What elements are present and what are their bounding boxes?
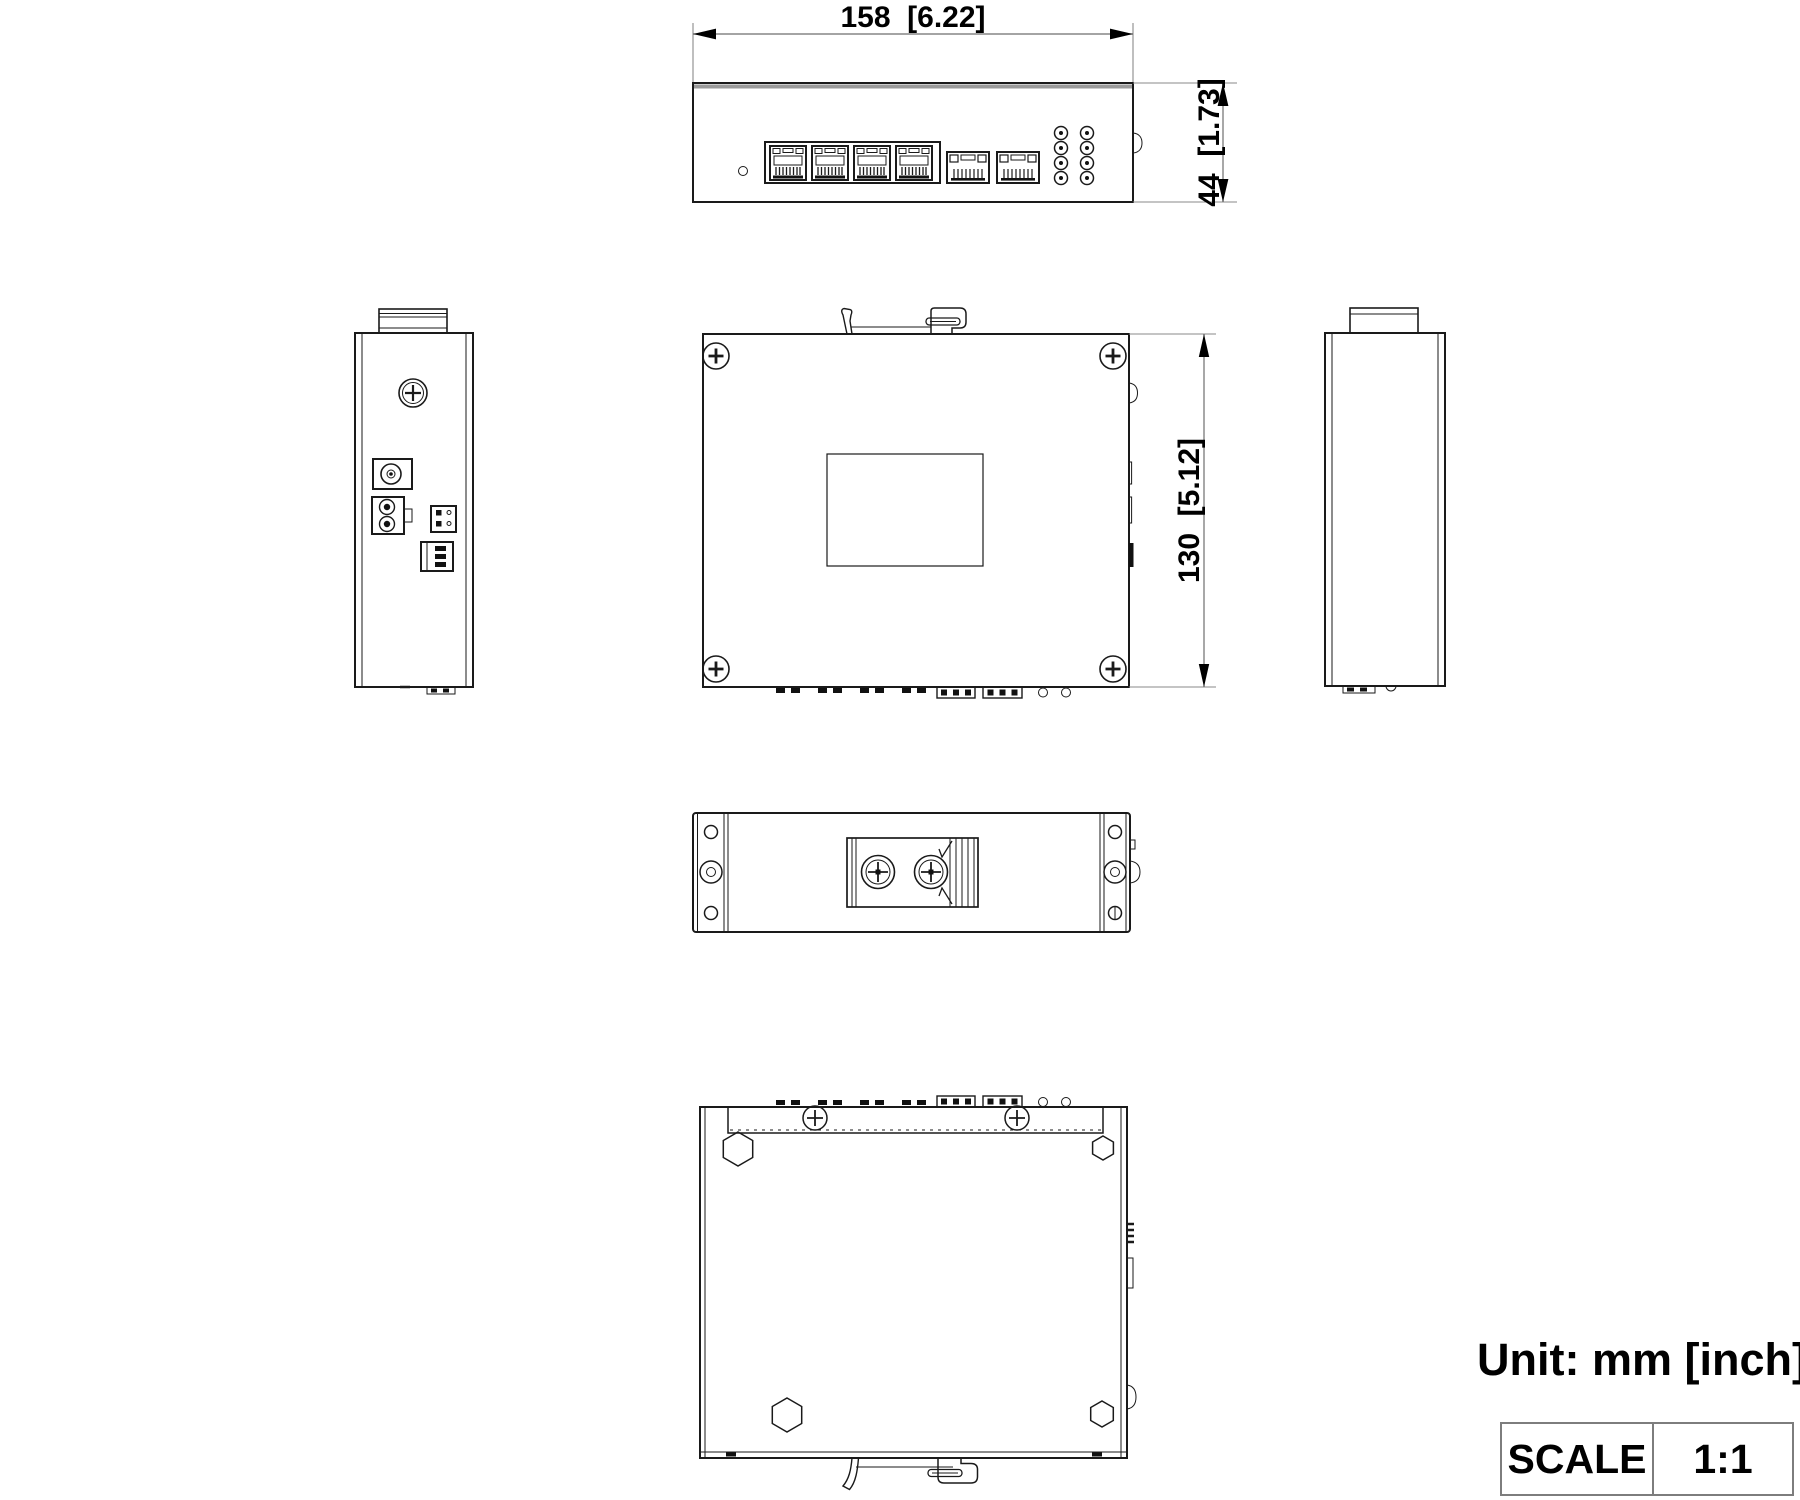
band-screw-2 (1005, 1106, 1029, 1130)
bottom-view (700, 1096, 1136, 1490)
rear-panel-band (728, 1106, 1103, 1133)
bottom-connector-side (1343, 686, 1396, 693)
relay-connector (431, 506, 456, 532)
dim-arrow-down (1199, 664, 1209, 687)
rj45-port-1 (770, 146, 806, 180)
din-clip-top (842, 308, 966, 334)
din-rail-bracket (847, 838, 978, 907)
front-top-edge-band (694, 85, 1132, 89)
front-view: 158 [6.22] 44 [1.73] (693, 1, 1237, 207)
scale-value: 1:1 (1654, 1424, 1792, 1494)
edge-features (1127, 1224, 1136, 1409)
hex-standoff-top-left (723, 1132, 752, 1166)
front-edge-ports (776, 1096, 1071, 1107)
hex-standoff-bottom-right (1091, 1401, 1114, 1427)
din-rail-clip-side (379, 309, 447, 333)
dim-arrow-up (1199, 334, 1209, 357)
edge-bump (1129, 383, 1138, 403)
band-screw-1 (803, 1106, 827, 1130)
bracket-screw-1 (862, 856, 895, 889)
dimension-depth-label: 130 [5.12] (1173, 438, 1206, 583)
bracket-screw-2 (915, 856, 948, 889)
dimension-width-label: 158 [6.22] (840, 1, 985, 34)
edge-connector-mark (1129, 543, 1134, 567)
hex-standoff-top-right (1093, 1136, 1114, 1160)
dimension-depth: 130 [5.12] (1129, 334, 1216, 687)
din-rail-clip-side (1350, 308, 1418, 333)
rj45-port-group (765, 142, 940, 183)
left-side-view (355, 309, 473, 694)
sfp-port-2 (997, 152, 1039, 183)
dim-arrow-left (693, 29, 716, 40)
scale-table: SCALE 1:1 (1500, 1422, 1794, 1496)
edge-bump (1130, 861, 1140, 883)
rear-view (693, 813, 1140, 932)
front-edge-ports (776, 687, 1071, 698)
dip-switch-block (421, 542, 453, 571)
din-clip-bottom (843, 1458, 978, 1490)
rj45-port-3 (854, 146, 890, 180)
drawing-linework: 158 [6.22] 44 [1.73] (0, 0, 1800, 1500)
hex-standoff-bottom-left (772, 1398, 801, 1432)
technical-drawing-canvas: 158 [6.22] 44 [1.73] (0, 0, 1800, 1500)
cover-screw-top-left (703, 343, 729, 369)
side-tab (1133, 133, 1142, 153)
dim-arrow-right (1110, 29, 1133, 40)
top-view: 130 [5.12] (703, 308, 1216, 698)
cover-screw-bottom-left (703, 656, 729, 682)
bottom-connector-side (400, 687, 455, 694)
reset-hole (739, 167, 748, 176)
mount-holes-right (1104, 826, 1126, 920)
right-side-view (1325, 308, 1445, 693)
scale-label: SCALE (1502, 1424, 1654, 1494)
dimension-height-label: 44 [1.73] (1193, 78, 1226, 206)
dc-power-jack (373, 459, 412, 489)
rj45-port-4 (896, 146, 932, 180)
label-window (827, 454, 983, 566)
cover-screw-top-right (1100, 343, 1126, 369)
ground-screw (399, 379, 427, 407)
unit-note: Unit: mm [inch] (1477, 1334, 1800, 1386)
rj45-port-2 (812, 146, 848, 180)
cover-screw-bottom-right (1100, 656, 1126, 682)
led-grid (1055, 127, 1094, 185)
power-terminal-block (372, 497, 412, 534)
sfp-port-1 (947, 152, 989, 183)
mount-holes-left (700, 826, 722, 920)
